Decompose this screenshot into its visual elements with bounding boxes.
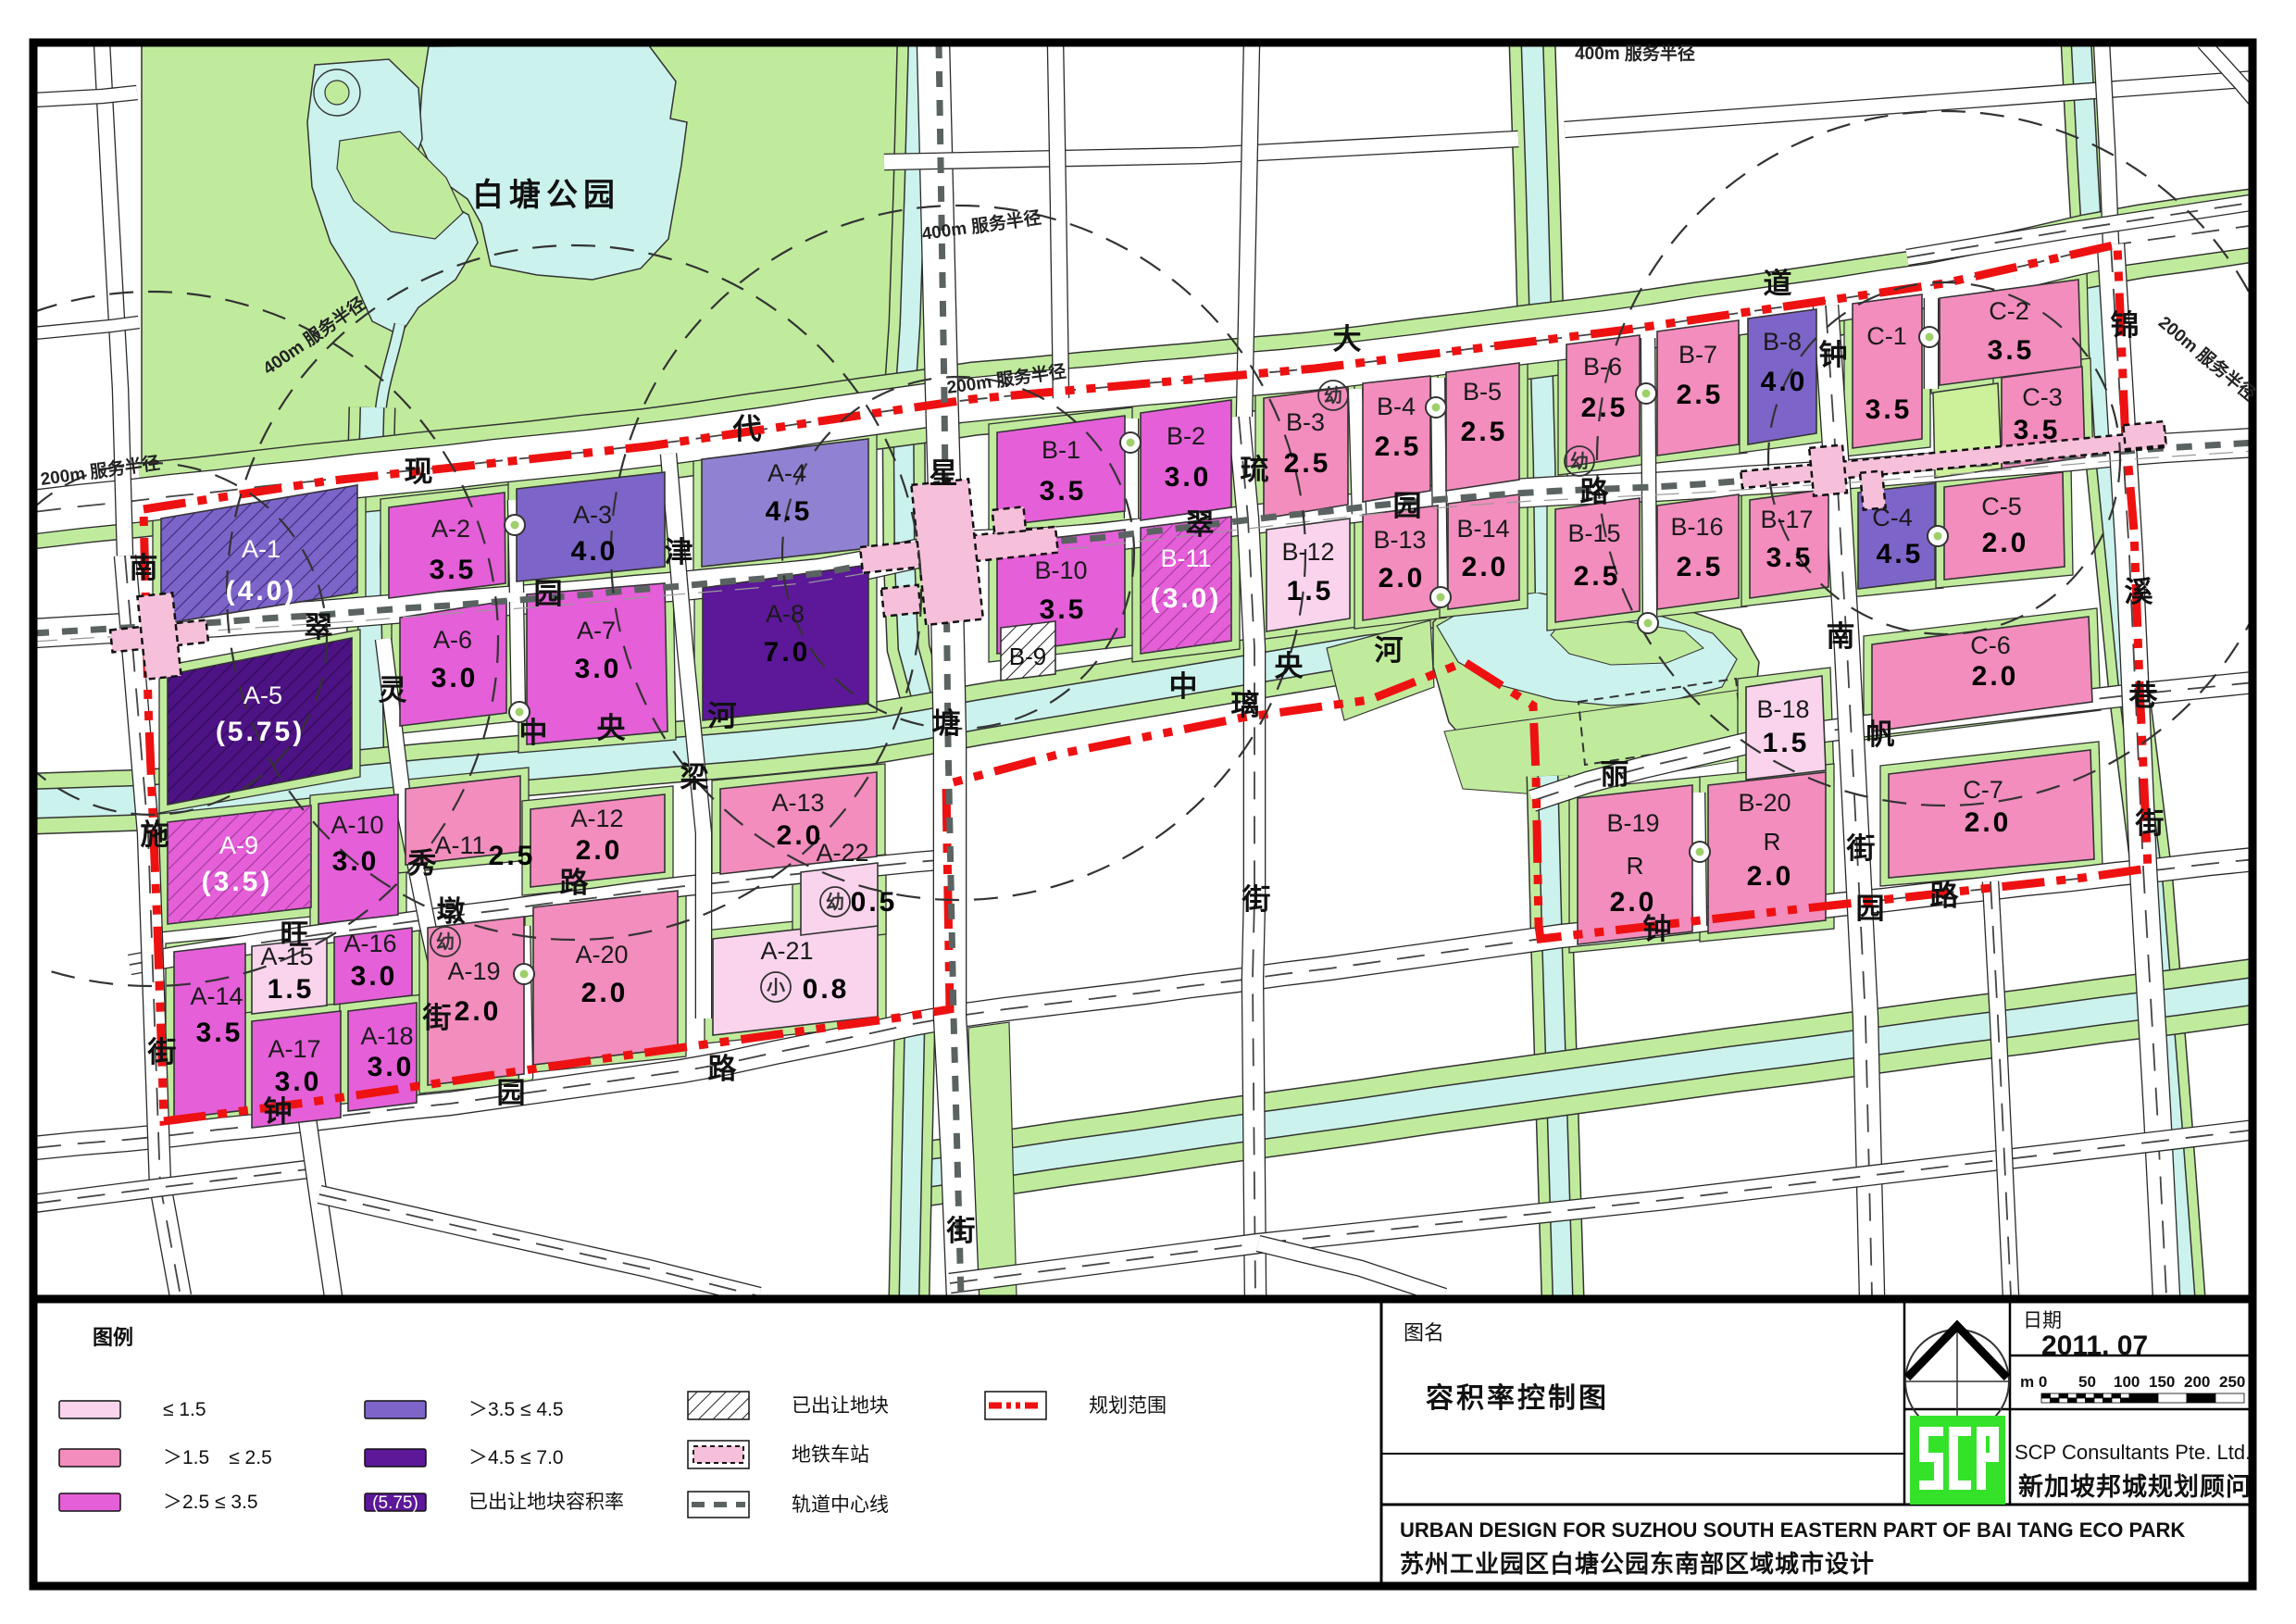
- svg-text:(3.0): (3.0): [1151, 583, 1222, 614]
- svg-text:A-14: A-14: [190, 982, 243, 1010]
- svg-text:3.0: 3.0: [431, 663, 479, 693]
- svg-text:3.5: 3.5: [1040, 476, 1087, 506]
- svg-text:2.0: 2.0: [1462, 552, 1509, 582]
- svg-text:街: 街: [147, 1036, 177, 1068]
- svg-text:C-2: C-2: [1989, 297, 2029, 325]
- svg-text:4.5: 4.5: [1877, 539, 1924, 569]
- svg-text:7.0: 7.0: [764, 637, 811, 668]
- svg-text:B-2: B-2: [1167, 422, 1205, 450]
- svg-text:B-12: B-12: [1281, 538, 1334, 566]
- svg-text:灵: 灵: [379, 674, 407, 706]
- svg-text:A-4: A-4: [767, 459, 806, 487]
- svg-text:(5.75): (5.75): [216, 717, 305, 747]
- svg-text:2.0: 2.0: [576, 835, 623, 866]
- svg-text:3.5: 3.5: [1040, 594, 1087, 625]
- svg-text:B-7: B-7: [1678, 341, 1717, 369]
- svg-text:3.0: 3.0: [575, 654, 622, 684]
- svg-text:翠: 翠: [305, 611, 333, 643]
- svg-text:A-2: A-2: [431, 515, 470, 543]
- svg-text:南: 南: [1827, 620, 1855, 653]
- svg-text:B-9: B-9: [1009, 643, 1046, 670]
- svg-text:丽: 丽: [1601, 758, 1629, 791]
- svg-text:0.8: 0.8: [803, 974, 850, 1005]
- svg-text:100: 100: [2114, 1373, 2140, 1391]
- svg-text:2.5: 2.5: [1574, 561, 1621, 592]
- svg-text:已出让地块容积率: 已出让地块容积率: [468, 1492, 624, 1513]
- svg-text:街: 街: [1242, 883, 1271, 916]
- svg-text:园: 园: [497, 1077, 526, 1109]
- svg-text:翠: 翠: [1186, 508, 1215, 541]
- svg-text:2.5: 2.5: [1375, 431, 1422, 462]
- svg-text:幼: 幼: [1570, 450, 1589, 472]
- svg-text:＞2.5 ≤ 3.5: ＞2.5 ≤ 3.5: [163, 1492, 258, 1513]
- svg-text:现: 现: [405, 456, 433, 488]
- svg-text:塘: 塘: [932, 707, 961, 740]
- svg-text:3.0: 3.0: [351, 961, 398, 992]
- svg-text:A-20: A-20: [575, 941, 628, 968]
- svg-text:A-3: A-3: [573, 501, 612, 529]
- svg-text:旺: 旺: [281, 918, 309, 951]
- svg-text:1.5: 1.5: [268, 974, 315, 1005]
- svg-text:路: 路: [1930, 880, 1960, 912]
- svg-text:苏州工业园区白塘公园东南部区域城市设计: 苏州工业园区白塘公园东南部区域城市设计: [1400, 1550, 1875, 1578]
- svg-text:规划范围: 规划范围: [1089, 1395, 1167, 1417]
- svg-text:2.0: 2.0: [581, 978, 629, 1008]
- svg-text:B-10: B-10: [1034, 556, 1087, 584]
- svg-text:幼: 幼: [436, 931, 455, 953]
- svg-text:A-8: A-8: [766, 600, 805, 628]
- svg-text:3.0: 3.0: [332, 846, 380, 877]
- svg-text:1.5: 1.5: [1763, 728, 1810, 758]
- svg-text:钟: 钟: [264, 1095, 293, 1128]
- svg-text:B-17: B-17: [1760, 506, 1813, 533]
- svg-text:A-21: A-21: [760, 937, 813, 965]
- svg-text:C-6: C-6: [1970, 631, 2011, 659]
- svg-text:1.5: 1.5: [1287, 576, 1334, 606]
- svg-text:B-4: B-4: [1377, 393, 1416, 420]
- svg-text:路: 路: [1580, 476, 1610, 508]
- svg-text:B-19: B-19: [1606, 809, 1659, 837]
- svg-text:C-3: C-3: [2022, 383, 2063, 411]
- svg-text:250: 250: [2219, 1373, 2245, 1391]
- svg-text:A-17: A-17: [268, 1035, 320, 1063]
- svg-text:B-20: B-20: [1738, 789, 1791, 817]
- svg-text:路: 路: [708, 1053, 738, 1085]
- svg-text:园: 园: [1856, 893, 1885, 925]
- svg-text:＞3.5 ≤ 4.5: ＞3.5 ≤ 4.5: [468, 1399, 564, 1420]
- svg-text:中: 中: [1169, 670, 1198, 703]
- svg-text:溪: 溪: [2125, 576, 2154, 608]
- svg-text:2.5: 2.5: [489, 841, 536, 871]
- svg-text:梁: 梁: [680, 761, 709, 793]
- svg-text:墩: 墩: [437, 895, 467, 928]
- svg-text:R: R: [1764, 828, 1781, 856]
- svg-text:4.5: 4.5: [766, 496, 813, 527]
- svg-text:≤ 1.5: ≤ 1.5: [163, 1399, 206, 1420]
- svg-text:3.0: 3.0: [1165, 462, 1212, 493]
- svg-text:2.0: 2.0: [1965, 807, 2012, 838]
- svg-text:R: R: [1627, 852, 1644, 880]
- svg-text:B-13: B-13: [1373, 526, 1426, 554]
- svg-text:南: 南: [130, 552, 158, 584]
- svg-text:已出让地块: 已出让地块: [792, 1395, 889, 1417]
- svg-text:3.5: 3.5: [1865, 394, 1913, 425]
- svg-text:3.5: 3.5: [2014, 415, 2061, 445]
- svg-text:A-16: A-16: [343, 930, 396, 957]
- svg-text:3.5: 3.5: [430, 555, 477, 585]
- svg-text:A-11: A-11: [434, 831, 485, 859]
- svg-text:2.0: 2.0: [1972, 661, 2019, 692]
- svg-text:2.5: 2.5: [1677, 380, 1724, 410]
- svg-text:2.5: 2.5: [1284, 448, 1331, 479]
- svg-text:秀: 秀: [407, 847, 437, 880]
- svg-text:A-7: A-7: [577, 617, 616, 644]
- svg-text:SCP Consultants Pte. Ltd.: SCP Consultants Pte. Ltd.: [2015, 1441, 2251, 1464]
- svg-text:2.0: 2.0: [1379, 563, 1426, 593]
- svg-text:幼: 幼: [1324, 384, 1342, 406]
- svg-text:B-15: B-15: [1567, 519, 1620, 547]
- svg-text:央: 央: [597, 712, 627, 744]
- svg-text:钟: 钟: [1643, 913, 1672, 945]
- svg-text:央: 央: [1275, 650, 1304, 682]
- svg-text:街: 街: [1846, 832, 1876, 865]
- svg-text:4.0: 4.0: [1761, 367, 1808, 397]
- svg-text:3.5: 3.5: [1766, 543, 1814, 573]
- svg-text:代: 代: [732, 413, 762, 445]
- svg-text:A-12: A-12: [570, 805, 623, 832]
- svg-text:B-8: B-8: [1763, 328, 1802, 356]
- svg-text:A-5: A-5: [243, 681, 282, 709]
- svg-text:m 0: m 0: [2020, 1373, 2047, 1391]
- svg-text:星: 星: [930, 457, 958, 490]
- svg-text:A-9: A-9: [219, 831, 258, 859]
- svg-text:2.0: 2.0: [1982, 528, 2029, 558]
- svg-text:地铁车站: 地铁车站: [792, 1444, 869, 1466]
- svg-text:街: 街: [946, 1215, 976, 1247]
- svg-text:施: 施: [141, 818, 169, 851]
- svg-text:B-6: B-6: [1583, 353, 1622, 381]
- svg-text:C-1: C-1: [1866, 322, 1907, 350]
- svg-text:新加坡邦城规划顾问: 新加坡邦城规划顾问: [2018, 1472, 2252, 1501]
- svg-text:B-5: B-5: [1463, 378, 1502, 406]
- svg-text:容积率控制图: 容积率控制图: [1426, 1383, 1609, 1414]
- svg-text:璃: 璃: [1231, 689, 1260, 721]
- svg-text:2.5: 2.5: [1677, 552, 1724, 582]
- svg-text:A-19: A-19: [447, 957, 500, 985]
- svg-text:B-18: B-18: [1756, 695, 1809, 723]
- svg-text:日期: 日期: [2023, 1310, 2062, 1331]
- svg-text:＞1.5 ≤ 2.5: ＞1.5 ≤ 2.5: [163, 1447, 272, 1468]
- svg-text:轨道中心线: 轨道中心线: [792, 1494, 889, 1516]
- svg-text:A-13: A-13: [771, 789, 824, 817]
- svg-text:B-11: B-11: [1160, 544, 1211, 572]
- svg-text:3.0: 3.0: [368, 1052, 415, 1082]
- svg-text:图例: 图例: [93, 1326, 133, 1349]
- svg-text:URBAN DESIGN FOR SUZHOU SOUTH: URBAN DESIGN FOR SUZHOU SOUTH EASTERN PA…: [1400, 1518, 2185, 1542]
- svg-text:中: 中: [519, 717, 548, 749]
- svg-text:2.0: 2.0: [455, 996, 502, 1027]
- svg-text:锦: 锦: [2111, 309, 2140, 342]
- svg-text:路: 路: [560, 867, 590, 899]
- svg-text:A-22: A-22: [816, 839, 868, 867]
- svg-text:园: 园: [1393, 490, 1422, 522]
- svg-text:街: 街: [2135, 807, 2165, 840]
- svg-text:钟: 钟: [1819, 339, 1848, 371]
- svg-text:琉: 琉: [1241, 454, 1269, 486]
- svg-text:幼: 幼: [826, 891, 844, 913]
- svg-text:小: 小: [767, 977, 785, 998]
- svg-text:3.5: 3.5: [1988, 335, 2035, 366]
- svg-text:3.5: 3.5: [196, 1018, 243, 1048]
- svg-text:河: 河: [708, 700, 737, 732]
- svg-text:3.0: 3.0: [275, 1067, 322, 1097]
- svg-text:200: 200: [2184, 1373, 2210, 1391]
- svg-text:道: 道: [1764, 268, 1792, 300]
- svg-text:(4.0): (4.0): [226, 576, 297, 606]
- svg-text:B-14: B-14: [1456, 515, 1509, 543]
- svg-text:街: 街: [422, 1002, 452, 1034]
- svg-text:B-1: B-1: [1042, 436, 1080, 464]
- svg-text:A-10: A-10: [331, 811, 383, 839]
- svg-text:园: 园: [534, 578, 563, 610]
- svg-text:C-7: C-7: [1963, 776, 2003, 804]
- svg-text:400m 服务半径: 400m 服务半径: [1575, 43, 1695, 64]
- svg-text:0.5: 0.5: [851, 887, 898, 918]
- svg-text:4.0: 4.0: [571, 536, 618, 567]
- svg-text:A-1: A-1: [242, 535, 281, 563]
- svg-text:2.5: 2.5: [1581, 393, 1628, 423]
- svg-text:B-16: B-16: [1670, 513, 1723, 541]
- svg-text:2011. 07: 2011. 07: [2041, 1330, 2148, 1361]
- svg-text:2.5: 2.5: [1461, 417, 1508, 447]
- svg-text:(3.5): (3.5): [202, 867, 273, 897]
- svg-text:帆: 帆: [1866, 718, 1895, 751]
- svg-text:＞4.5 ≤ 7.0: ＞4.5 ≤ 7.0: [468, 1447, 564, 1468]
- svg-text:图名: 图名: [1404, 1321, 1444, 1344]
- svg-text:白塘公园: 白塘公园: [472, 178, 620, 213]
- svg-text:50: 50: [2078, 1373, 2096, 1391]
- svg-text:大: 大: [1333, 323, 1362, 356]
- svg-text:A-6: A-6: [433, 626, 472, 654]
- svg-text:C-4: C-4: [1872, 504, 1913, 531]
- svg-text:2.0: 2.0: [1747, 861, 1794, 892]
- svg-text:巷: 巷: [2129, 680, 2158, 712]
- svg-text:津: 津: [665, 536, 693, 568]
- svg-text:河: 河: [1375, 634, 1404, 667]
- svg-text:150: 150: [2149, 1373, 2175, 1391]
- svg-text:A-18: A-18: [360, 1022, 413, 1050]
- svg-text:C-5: C-5: [1981, 493, 2022, 520]
- svg-text:B-3: B-3: [1286, 408, 1325, 436]
- svg-text:(5.75): (5.75): [372, 1493, 418, 1513]
